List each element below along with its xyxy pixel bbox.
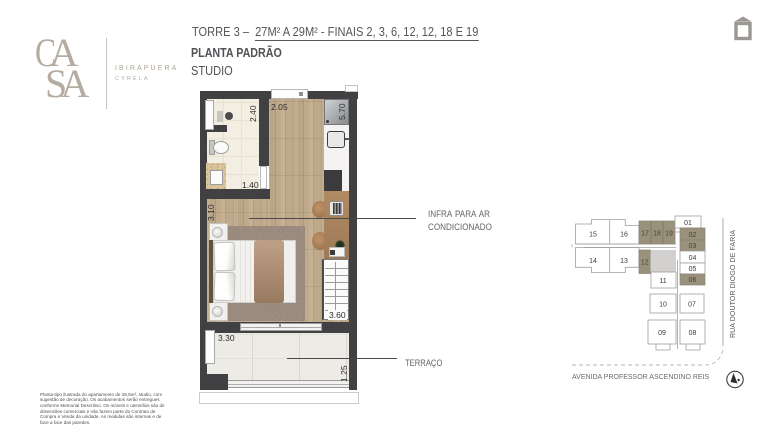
svg-text:16: 16: [620, 232, 628, 239]
svg-text:05: 05: [689, 266, 697, 273]
svg-text:09: 09: [658, 330, 666, 337]
svg-text:02: 02: [689, 232, 697, 239]
svg-text:06: 06: [689, 277, 697, 284]
svg-text:08: 08: [689, 330, 697, 337]
svg-text:19: 19: [665, 231, 673, 238]
svg-text:18: 18: [653, 231, 661, 238]
svg-text:17: 17: [641, 231, 649, 238]
svg-text:03: 03: [689, 243, 697, 250]
svg-text:12: 12: [641, 260, 649, 267]
svg-text:14: 14: [589, 258, 597, 265]
svg-text:11: 11: [659, 278, 666, 285]
svg-text:15: 15: [589, 232, 597, 239]
svg-text:01: 01: [684, 220, 692, 227]
svg-text:07: 07: [688, 302, 696, 309]
svg-text:04: 04: [689, 255, 697, 262]
svg-text:13: 13: [620, 258, 628, 265]
svg-text:10: 10: [659, 302, 667, 309]
